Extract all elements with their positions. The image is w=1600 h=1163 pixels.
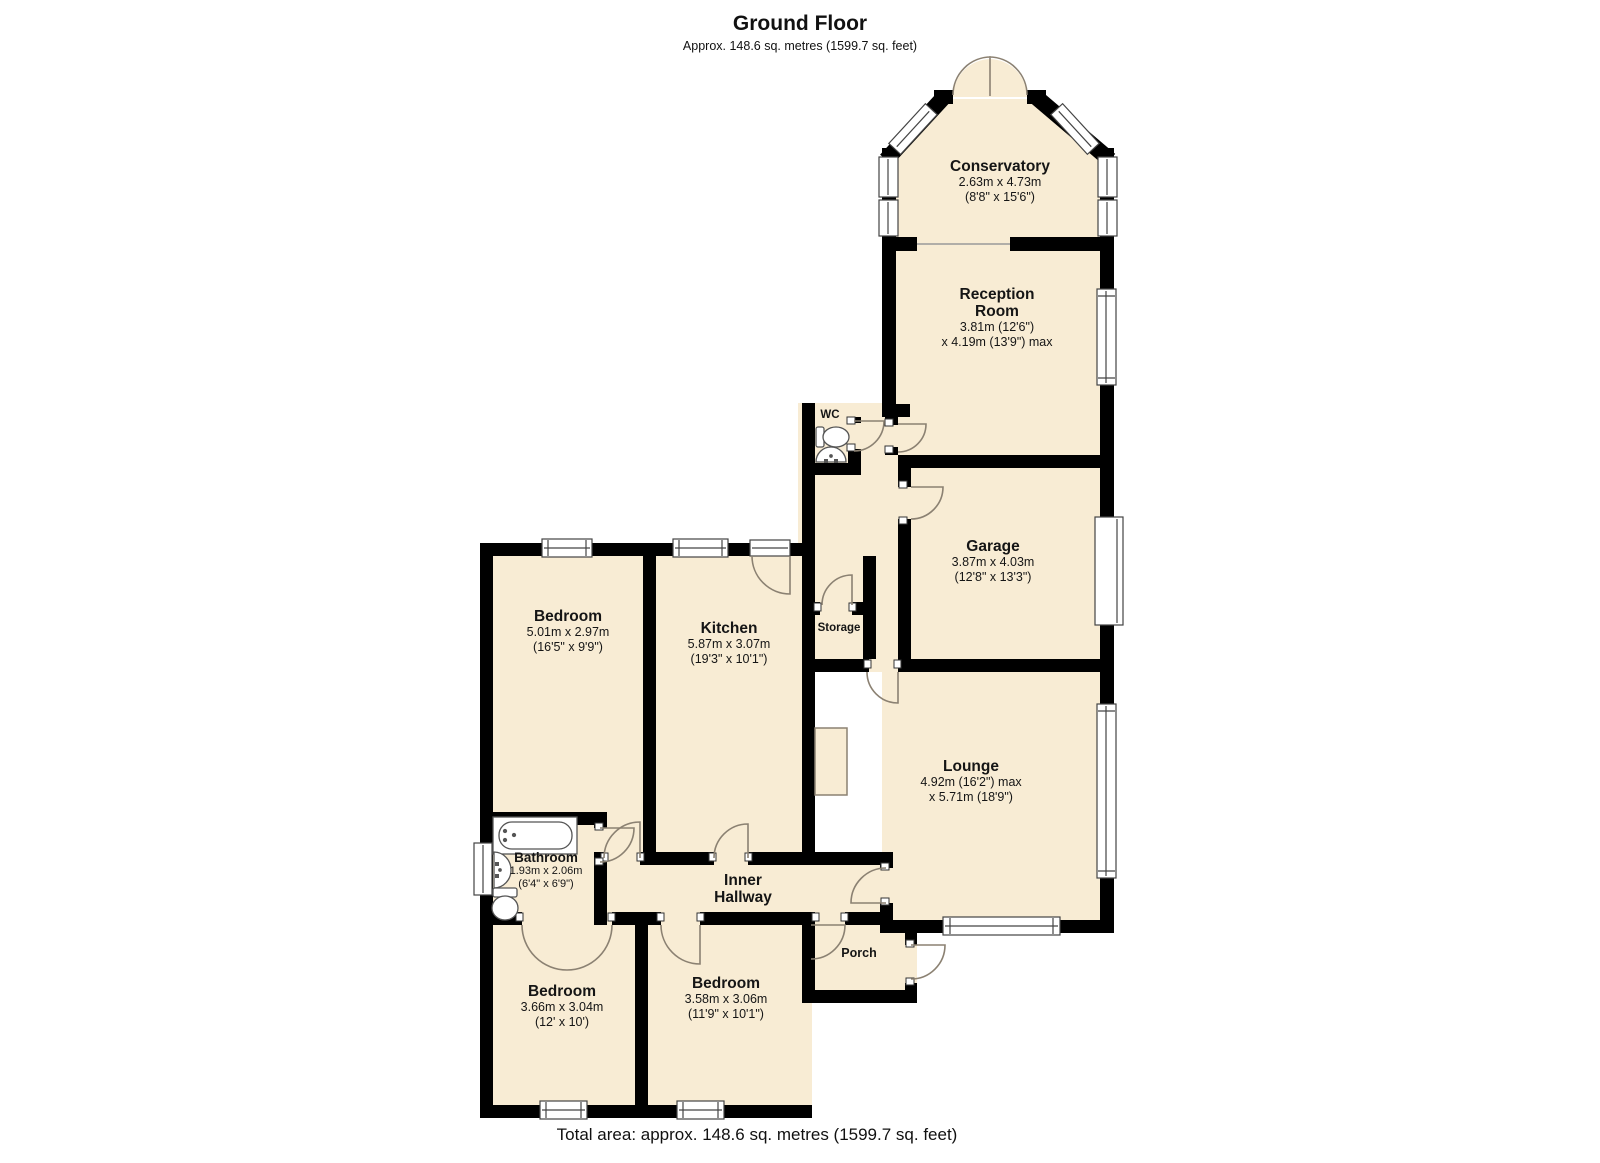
room-name: Bedroom [527, 608, 610, 625]
door-jamb [657, 913, 664, 921]
room-label-bedroom-bottom-left: Bedroom 3.66m x 3.04m (12' x 10') [521, 983, 604, 1030]
window [879, 157, 898, 197]
window [1098, 157, 1117, 197]
wall-segment [700, 912, 815, 925]
room-label-kitchen: Kitchen 5.87m x 3.07m (19'3" x 10'1") [688, 620, 771, 667]
wall-segment [863, 556, 876, 659]
wall-segment [656, 852, 714, 865]
garage-door [1095, 517, 1123, 625]
room-dim-imperial: (11'9" x 10'1") [685, 1007, 768, 1022]
wall-segment [898, 659, 1100, 672]
toilet-icon [816, 427, 849, 447]
room-name: Conservatory [950, 158, 1050, 175]
room-name: Lounge [920, 758, 1021, 775]
door-jamb [847, 417, 855, 424]
door-jamb [906, 940, 914, 947]
room-dim-imperial: (12'8" x 13'3") [952, 570, 1035, 585]
room-label-garage: Garage 3.87m x 4.03m (12'8" x 13'3") [952, 538, 1035, 585]
room-label-bedroom-left: Bedroom 5.01m x 2.97m (16'5" x 9'9") [527, 608, 610, 655]
room-dim-metric: 3.66m x 3.04m [521, 1000, 604, 1015]
room-name: Hallway [714, 889, 772, 906]
window [879, 200, 898, 236]
door-jamb [697, 913, 704, 921]
room-label-storage: Storage [818, 622, 861, 634]
door-jamb [516, 913, 523, 921]
room-dim-metric: 3.81m (12'6") [941, 320, 1052, 335]
exterior-door [750, 540, 790, 556]
room-name: Bedroom [521, 983, 604, 1000]
wall-segment [635, 912, 648, 1105]
door-jamb [899, 517, 907, 524]
room-name: Storage [818, 622, 861, 634]
room-name: Bedroom [685, 975, 768, 992]
room-dim-imperial: x 5.71m (18'9") [920, 790, 1021, 805]
window [943, 917, 1060, 935]
toilet-icon [492, 888, 518, 920]
room-label-bedroom-bottom-middle: Bedroom 3.58m x 3.06m (11'9" x 10'1") [685, 975, 768, 1022]
room-name: WC [820, 409, 839, 421]
wall-segment [594, 862, 607, 925]
door-jamb [885, 446, 893, 453]
page-subtitle: Approx. 148.6 sq. metres (1599.7 sq. fee… [683, 39, 917, 53]
window [1097, 704, 1116, 878]
wall-segment [480, 1105, 812, 1118]
floor-right-block [882, 99, 1114, 933]
window [540, 1101, 587, 1119]
window [677, 1101, 724, 1119]
room-name: Garage [952, 538, 1035, 555]
door-jamb [899, 481, 907, 488]
window [1098, 200, 1117, 236]
door-jamb [847, 444, 855, 451]
wall-segment [748, 852, 893, 865]
chimney-breast [815, 728, 847, 795]
room-dim-metric: 3.87m x 4.03m [952, 555, 1035, 570]
room-dim-metric: 2.63m x 4.73m [950, 175, 1050, 190]
page-title-block: Ground Floor Approx. 148.6 sq. metres (1… [683, 12, 917, 53]
room-name: Bathroom [510, 851, 583, 865]
room-name: Room [941, 303, 1052, 320]
room-name: Inner [714, 872, 772, 889]
window [542, 539, 592, 557]
wall-segment [882, 237, 896, 417]
wall-segment [848, 449, 861, 475]
window [1097, 289, 1116, 385]
door-jamb [595, 823, 603, 830]
door-jamb [841, 913, 848, 921]
room-dim-imperial: (16'5" x 9'9") [527, 640, 610, 655]
wall-segment [643, 556, 656, 852]
wall-segment [845, 912, 893, 925]
door-jamb [608, 913, 615, 921]
room-label-porch: Porch [841, 947, 876, 960]
door-jamb [812, 913, 819, 921]
room-label-inner-hallway: Inner Hallway [714, 872, 772, 906]
room-dim-metric: 5.01m x 2.97m [527, 625, 610, 640]
room-label-lounge: Lounge 4.92m (16'2") max x 5.71m (18'9") [920, 758, 1021, 805]
wall-segment [802, 990, 917, 1003]
wall-segment [882, 237, 917, 251]
wall-segment [480, 543, 493, 1118]
room-dim-metric: 1.93m x 2.06m [510, 865, 583, 878]
window [673, 539, 728, 557]
room-name: Porch [841, 947, 876, 960]
room-dim-metric: 4.92m (16'2") max [920, 775, 1021, 790]
wall-segment [898, 519, 911, 672]
room-name: Reception [941, 286, 1052, 303]
room-label-reception-room: Reception Room 3.81m (12'6") x 4.19m (13… [941, 286, 1052, 350]
room-label-conservatory: Conservatory 2.63m x 4.73m (8'8" x 15'6"… [950, 158, 1050, 205]
total-area-text: Total area: approx. 148.6 sq. metres (15… [557, 1125, 958, 1145]
room-label-wc: WC [820, 409, 839, 421]
conservatory-door-swing-area-right [989, 59, 1027, 97]
floor-plan-page: Ground Floor Approx. 148.6 sq. metres (1… [0, 0, 1600, 1163]
room-dim-imperial: x 4.19m (13'9") max [941, 335, 1052, 350]
room-dim-imperial: (19'3" x 10'1") [688, 652, 771, 667]
room-dim-imperial: (8'8" x 15'6") [950, 190, 1050, 205]
room-dim-metric: 5.87m x 3.07m [688, 637, 771, 652]
room-dim-imperial: (12' x 10') [521, 1015, 604, 1030]
door-jamb [864, 660, 871, 668]
room-label-bathroom: Bathroom 1.93m x 2.06m (6'4" x 6'9") [510, 851, 583, 890]
door-jamb [814, 603, 821, 611]
wall-segment [802, 659, 869, 672]
floor-plan-svg [0, 0, 1600, 1163]
wall-segment [898, 455, 1100, 468]
room-dim-metric: 3.58m x 3.06m [685, 992, 768, 1007]
room-name: Kitchen [688, 620, 771, 637]
conservatory-door-swing-area-left [953, 59, 991, 97]
floor-areas [480, 59, 1114, 1118]
door-jamb [885, 419, 893, 426]
window [474, 843, 492, 895]
room-dim-imperial: (6'4" x 6'9") [510, 878, 583, 891]
door-jamb [894, 660, 901, 668]
bathtub-icon [493, 817, 577, 854]
page-title: Ground Floor [683, 12, 917, 36]
door-jamb [881, 898, 889, 905]
wall-segment [1010, 237, 1114, 251]
